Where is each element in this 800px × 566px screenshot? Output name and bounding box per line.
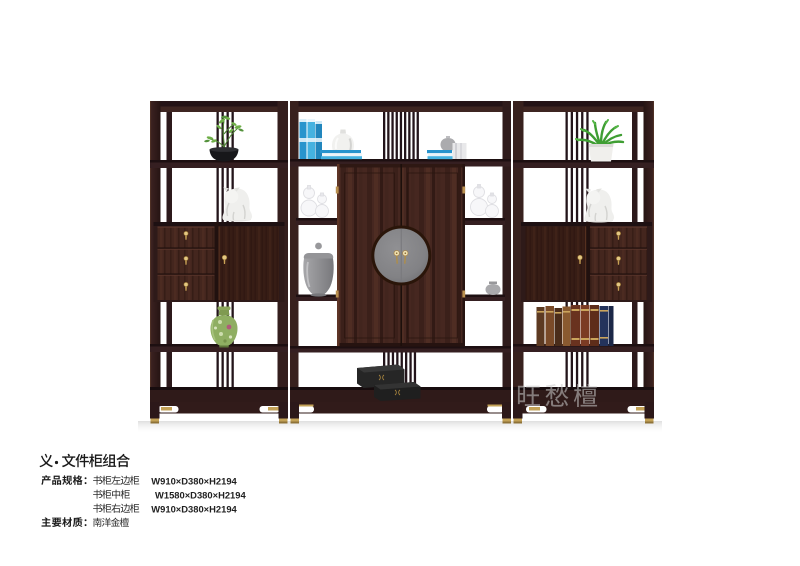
svg-text:W1580×D380×H2194: W1580×D380×H2194 xyxy=(155,490,246,501)
svg-text:W910×D380×H2194: W910×D380×H2194 xyxy=(151,504,237,515)
svg-text:W910×D380×H2194: W910×D380×H2194 xyxy=(151,476,237,487)
